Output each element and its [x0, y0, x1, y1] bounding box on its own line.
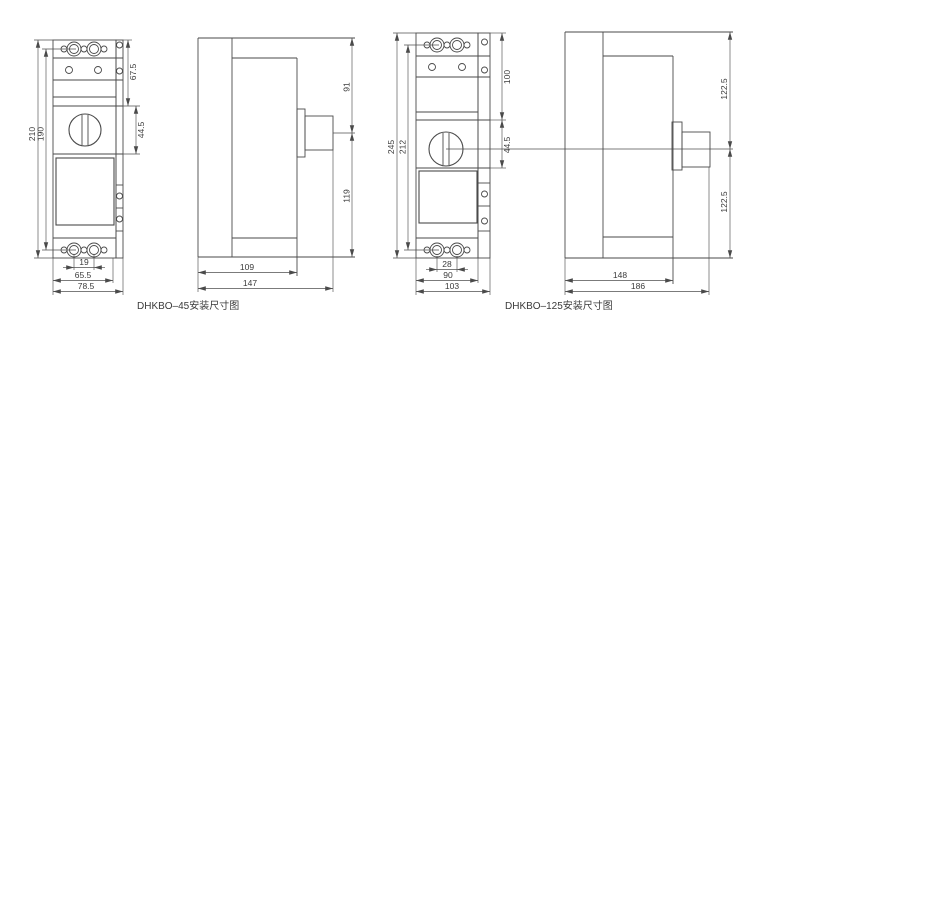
dim-label-handle-section: 44.5 [136, 121, 146, 138]
dim-label-body-width: 65.5 [75, 270, 92, 280]
dim-label-top-to-handle: 100 [502, 70, 512, 84]
dim-label-overall-height: 245 [386, 140, 396, 154]
dim-label-terminal-pitch: 19 [79, 257, 89, 267]
dim-label-top-to-center: 91 [342, 82, 352, 92]
dim-label-top-to-center: 122.5 [719, 78, 729, 100]
dim-label-overall-depth: 186 [631, 281, 645, 291]
dim-label-mounting-height: 190 [36, 127, 46, 141]
dim-label-terminal-pitch: 28 [442, 259, 452, 269]
dim-label-top-to-handle: 67.5 [128, 63, 138, 80]
dim-label-mounting-height: 212 [398, 140, 408, 154]
dim-label-handle-section: 44.5 [502, 136, 512, 153]
dim-label-overall-width: 78.5 [78, 281, 95, 291]
dim-label-overall-depth: 147 [243, 278, 257, 288]
dim-label-body-depth: 109 [240, 262, 254, 272]
figure-caption: DHKBO–45安装尺寸图 [137, 299, 239, 312]
dim-label-overall-width: 103 [445, 281, 459, 291]
dim-label-body-width: 90 [443, 270, 453, 280]
dim-label-body-depth: 148 [613, 270, 627, 280]
figure-caption: DHKBO–125安装尺寸图 [505, 299, 613, 312]
drawing-sheet: 210 190 67.5 44.5 19 65.5 [0, 0, 948, 900]
dim-label-center-to-bottom: 122.5 [719, 191, 729, 213]
dimension-drawing: 210 190 67.5 44.5 19 65.5 [0, 0, 948, 900]
dim-label-center-to-bottom: 119 [342, 189, 352, 203]
